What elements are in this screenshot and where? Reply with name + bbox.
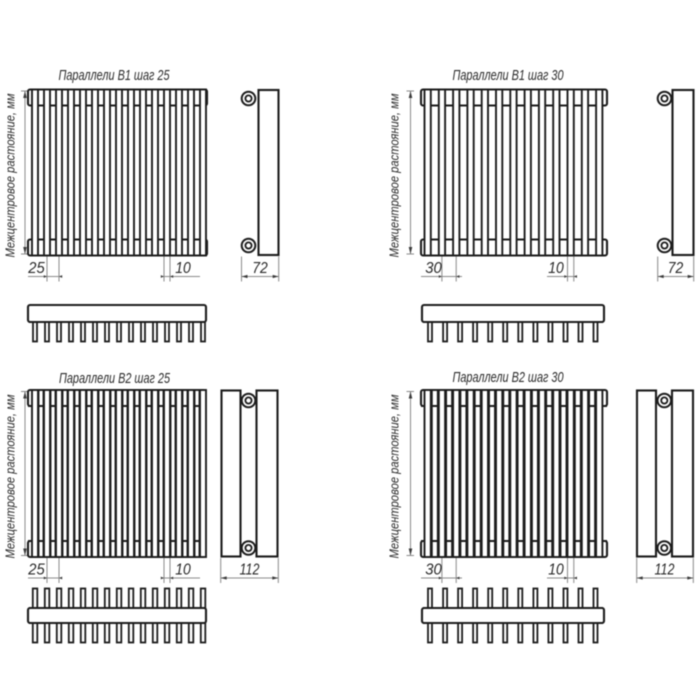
svg-text:112: 112 [655, 562, 675, 579]
svg-text:Межцентровое растояние, мм: Межцентровое растояние, мм [3, 93, 18, 257]
svg-text:10: 10 [175, 260, 191, 277]
svg-text:10: 10 [548, 260, 564, 277]
svg-text:10: 10 [175, 562, 191, 579]
svg-text:112: 112 [240, 562, 260, 579]
svg-text:25: 25 [27, 562, 45, 579]
svg-text:Параллели В2 шаг 25: Параллели В2 шаг 25 [59, 370, 170, 387]
svg-text:30: 30 [425, 562, 442, 579]
svg-text:25: 25 [27, 260, 45, 277]
svg-text:Параллели В1 шаг 30: Параллели В1 шаг 30 [453, 67, 564, 84]
svg-text:Параллели В2 шаг 30: Параллели В2 шаг 30 [453, 369, 564, 386]
svg-text:72: 72 [252, 260, 268, 277]
svg-text:Параллели В1 шаг 25: Параллели В1 шаг 25 [59, 67, 170, 84]
svg-text:30: 30 [425, 260, 442, 277]
svg-text:Межцентровое растояние, мм: Межцентровое растояние, мм [387, 93, 402, 257]
svg-text:72: 72 [668, 260, 684, 277]
svg-text:Межцентровое растояние, мм: Межцентровое растояние, мм [3, 394, 18, 558]
svg-text:10: 10 [548, 562, 564, 579]
svg-text:Межцентровое растояние, мм: Межцентровое растояние, мм [387, 394, 402, 558]
